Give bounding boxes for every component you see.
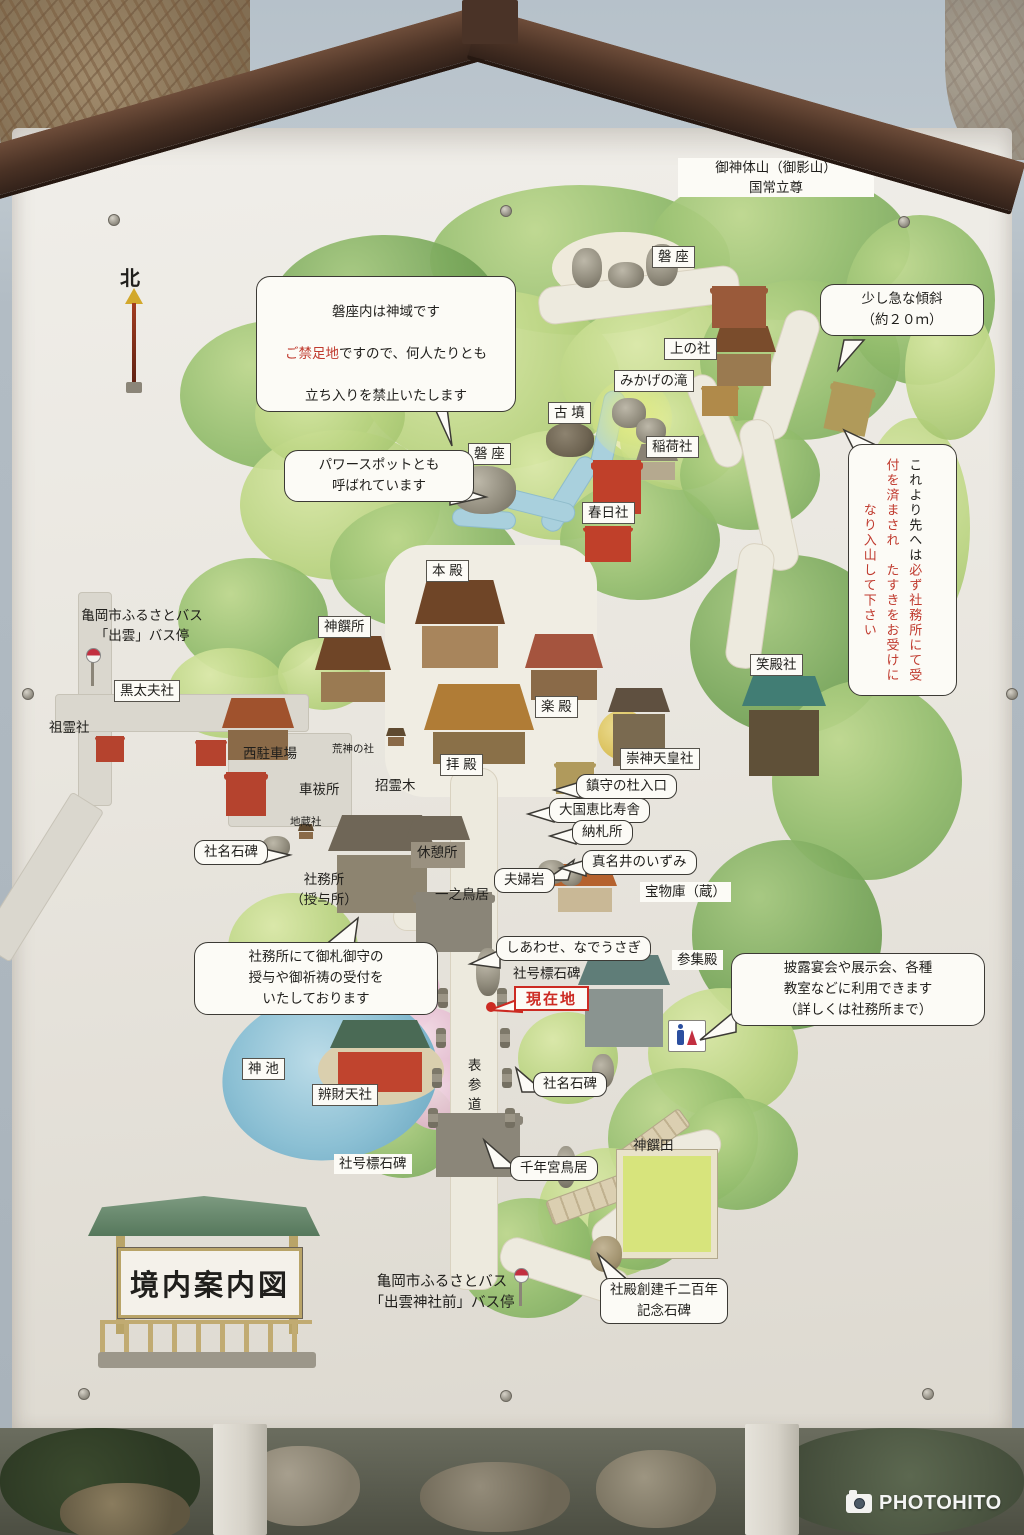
stone xyxy=(572,248,602,288)
ground xyxy=(0,1428,1024,1535)
stone-lantern xyxy=(500,1028,510,1048)
stone-lantern xyxy=(428,1108,438,1128)
callout-reception: これより先へは必ず社務所にて受付を済まされ たすきをお受けになり入山して下さい xyxy=(848,444,957,696)
north-arrow-shaft xyxy=(132,303,136,385)
twigs-bottom-left xyxy=(60,1483,190,1535)
bush-right xyxy=(770,1428,1024,1535)
label-haiden: 拝 殿 xyxy=(440,754,483,776)
torii-soreisha xyxy=(96,736,124,762)
haiden-building xyxy=(424,684,534,764)
benzaitensha-building xyxy=(330,1020,430,1092)
label-kaminoyashiro: 上の社 xyxy=(664,338,717,360)
label-kofun: 古 墳 xyxy=(548,402,591,424)
kojin-no-yashiro-building xyxy=(386,728,406,746)
label-shago-hyo-lower: 社号標石碑 xyxy=(334,1154,412,1174)
bolt xyxy=(78,1388,90,1400)
label-emidonosha: 笑殿社 xyxy=(750,654,803,676)
callout-shamusho-note: 社務所にて御札御守の 授与や御祈祷の受付を いたしております xyxy=(194,942,438,1015)
callout-shamei-sekihi-upper: 社名石碑 xyxy=(194,840,268,865)
title-sign-base xyxy=(98,1352,316,1368)
label-omote-sando: 表参道 xyxy=(458,1058,488,1117)
honden-building xyxy=(415,580,505,668)
label-mikage-falls: みかげの滝 xyxy=(614,370,694,392)
label-shinsensho: 神饌所 xyxy=(318,616,371,638)
roof-peak-cap xyxy=(462,0,518,44)
current-location-badge: 現在地 xyxy=(514,986,589,1011)
sign-post-left xyxy=(213,1424,267,1535)
watermark-text: PHOTOHITO xyxy=(879,1492,1002,1515)
label-jizosha: 地蔵社 xyxy=(288,815,324,830)
label-shinsenden: 神饌田 xyxy=(628,1136,679,1156)
notice-line3: 立ち入りを禁止いたします xyxy=(305,388,467,403)
label-shinike: 神 池 xyxy=(242,1058,285,1080)
sacred-rice-field xyxy=(617,1150,717,1258)
bubble-tail xyxy=(836,338,868,372)
torii-upper xyxy=(702,386,738,416)
stone xyxy=(608,262,644,288)
label-gakuden: 楽 殿 xyxy=(535,696,578,718)
notice-line1: 磐座内は神域です xyxy=(332,304,440,319)
label-kojin-no-yashiro: 荒神の社 xyxy=(330,742,376,757)
north-label: 北 xyxy=(120,262,140,291)
north-arrow-base xyxy=(126,382,142,393)
torii-kurotayu xyxy=(196,740,226,766)
stone-lantern xyxy=(432,1068,442,1088)
label-sanshuden: 参集殿 xyxy=(672,950,723,970)
label-sujintennosha: 崇神天皇社 xyxy=(620,748,700,770)
rock xyxy=(420,1462,570,1532)
callout-meotoiwa: 夫婦岩 xyxy=(494,868,555,893)
label-shamusho: 社務所 （授与所） xyxy=(284,870,364,909)
bolt xyxy=(500,1390,512,1402)
current-location-dot xyxy=(486,1002,496,1012)
kaminoyashiro-building xyxy=(712,326,776,386)
photo-of-shrine-map-sign: 北 御神体山（御影山） 国常立尊 磐 座 上の社 みかげの滝 古 墳 稲荷社 春… xyxy=(0,0,1024,1535)
label-iwakura-lower: 磐 座 xyxy=(468,443,511,465)
reception-black: これより先へは xyxy=(907,458,922,563)
label-kurotayusha: 黒太夫社 xyxy=(114,680,180,702)
bolt xyxy=(22,688,34,700)
shinsensho-building xyxy=(315,636,391,702)
rock xyxy=(596,1450,716,1528)
callout-iwakura-notice: 磐座内は神域です ご禁足地ですので、何人たりとも 立ち入りを禁止いたします xyxy=(256,276,516,412)
stone-lantern xyxy=(436,1028,446,1048)
callout-chinju-entrance: 鎮守の杜入口 xyxy=(576,774,677,799)
callout-shiawase-nadeusagi: しあわせ、なでうさぎ xyxy=(496,936,651,961)
callout-sennengu-torii: 千年宮鳥居 xyxy=(510,1156,598,1181)
watermark: PHOTOHITO xyxy=(846,1492,1002,1515)
stone-lantern xyxy=(502,1068,512,1088)
stone-lantern xyxy=(505,1108,515,1128)
bolt xyxy=(898,216,910,228)
callout-manai-spring: 真名井のいずみ xyxy=(582,850,697,875)
callout-shamei-sekihi-lower: 社名石碑 xyxy=(533,1072,607,1097)
sanshuden-building xyxy=(578,955,670,1047)
north-arrow-icon xyxy=(125,288,143,304)
callout-slope: 少し急な傾斜 （約２０ｍ） xyxy=(820,284,984,336)
emidonosha-building xyxy=(742,676,826,776)
label-soreisha: 祖霊社 xyxy=(44,718,95,738)
callout-nosatsusho: 納札所 xyxy=(572,820,633,845)
label-kasugasha: 春日社 xyxy=(582,502,635,524)
label-bus-stop-izumo-jinja-mae: 亀岡市ふるさとバス 「出雲神社前」バス停 xyxy=(352,1272,532,1314)
label-bus-stop-izumo: 亀岡市ふるさとバス 「出雲」バス停 xyxy=(62,606,222,645)
bolt xyxy=(922,1388,934,1400)
stone-lantern xyxy=(438,988,448,1008)
gakuden-building xyxy=(525,634,603,700)
bolt xyxy=(500,205,512,217)
label-kurumaharaisho: 車祓所 xyxy=(294,780,345,800)
notice-line2: ですので、何人たりとも xyxy=(339,346,487,361)
torii-top-right xyxy=(712,286,766,328)
label-benzaitensha: 辨財天社 xyxy=(312,1084,378,1106)
label-ichino-torii: 一之鳥居 xyxy=(430,885,494,905)
sign-post-right xyxy=(745,1424,799,1535)
kurumaharai-gate xyxy=(226,772,266,816)
label-inarisha: 稲荷社 xyxy=(646,436,699,458)
label-nishi-parking: 西駐車場 xyxy=(238,744,302,764)
label-kyukeisho: 休憩所 xyxy=(412,843,463,863)
camera-icon xyxy=(846,1494,872,1513)
bolt xyxy=(108,214,120,226)
stone xyxy=(546,423,594,457)
label-homotsuko: 宝物庫（蔵） xyxy=(640,882,731,902)
callout-power-spot: パワースポットとも 呼ばれています xyxy=(284,450,474,502)
notice-red: ご禁足地 xyxy=(285,346,339,361)
callout-sanshuden-note: 披露宴会や展示会、各種 教室などに利用できます （詳しくは社務所まで） xyxy=(731,953,985,1026)
bolt xyxy=(1006,688,1018,700)
label-honden: 本 殿 xyxy=(426,560,469,582)
map-title: 境内案内図 xyxy=(118,1248,302,1318)
label-iwakura-upper: 磐 座 xyxy=(652,246,695,268)
kasuga-torii xyxy=(585,526,631,562)
label-ogatamanoki: 招霊木 xyxy=(370,776,421,796)
label-shago-hyo-center: 社号標石碑 xyxy=(508,964,586,984)
callout-kinen-sekihi: 社殿創建千二百年 記念石碑 xyxy=(600,1278,728,1324)
